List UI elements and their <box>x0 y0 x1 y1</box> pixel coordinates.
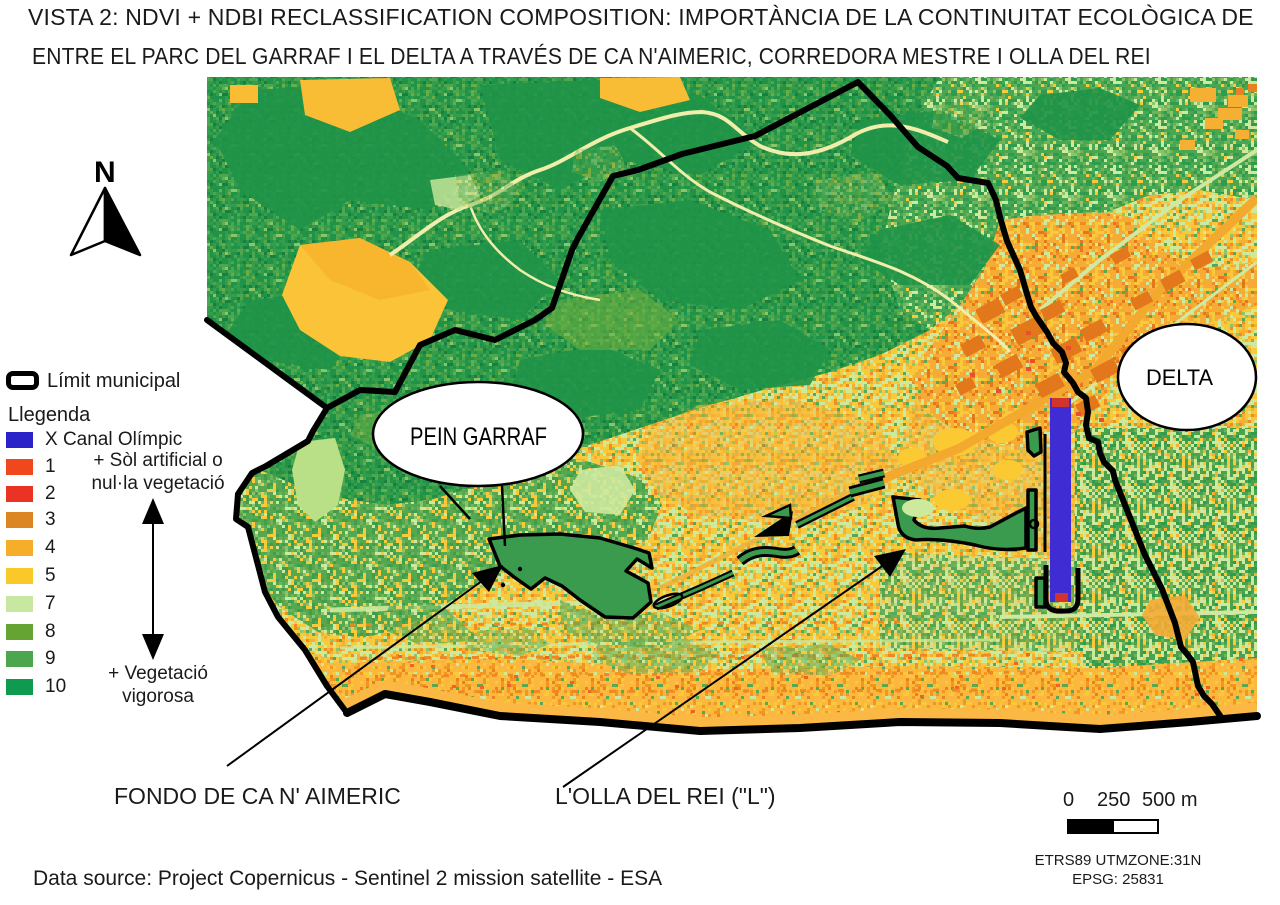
svg-text:PEIN GARRAF: PEIN GARRAF <box>410 423 547 451</box>
svg-text:DELTA: DELTA <box>1146 365 1213 390</box>
svg-text:N: N <box>94 156 116 189</box>
